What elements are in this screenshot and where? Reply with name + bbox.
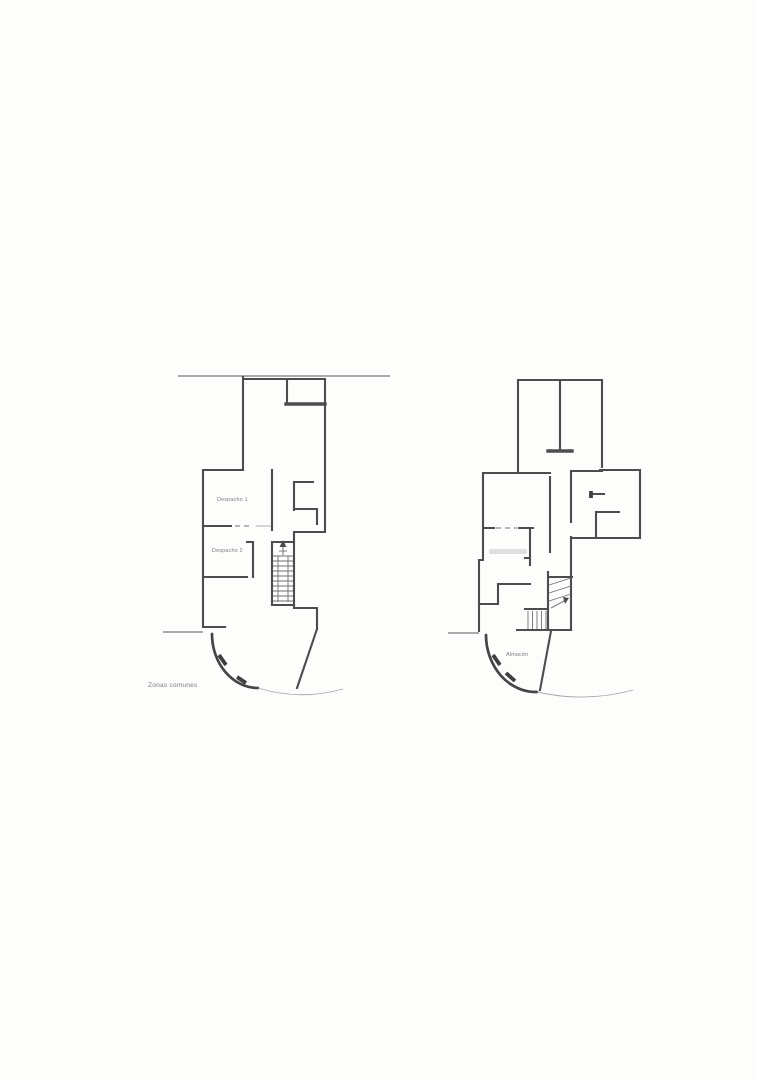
label-zonas-comunes: Zonas comunes <box>148 682 198 689</box>
floor-plan-right: Almacén <box>448 380 640 697</box>
left-plan-partitions <box>203 470 294 605</box>
right-plan-wing-walls <box>571 470 640 538</box>
left-plan-closet-walls <box>294 482 317 524</box>
floorplans-drawing: Despacho 1 Despacho 2 Zonas comunes <box>0 0 757 1080</box>
left-plan-staircase <box>273 540 293 602</box>
right-plan-swing-arc <box>537 690 633 697</box>
scanned-floorplan-sheet: Despacho 1 Despacho 2 Zonas comunes <box>0 0 757 1080</box>
right-plan-top-block <box>518 380 602 472</box>
faint-illegible-label <box>489 549 527 554</box>
left-plan-swing-arc <box>258 688 343 695</box>
stair-direction-arrow-2 <box>551 600 566 608</box>
stair-direction-arrow <box>279 546 287 555</box>
floor-plan-left: Despacho 1 Despacho 2 Zonas comunes <box>148 376 390 695</box>
right-plan-curved-wall <box>486 635 537 692</box>
label-despacho-1: Despacho 1 <box>217 497 248 503</box>
left-plan-outer-walls <box>203 377 325 688</box>
right-plan-lower-room-walls <box>479 528 533 604</box>
left-plan-curved-wall <box>212 634 258 688</box>
right-plan-staircase <box>517 572 572 630</box>
label-almacen: Almacén <box>506 652 528 658</box>
right-plan-slanted-wall <box>540 631 551 690</box>
label-despacho-2: Despacho 2 <box>212 548 243 554</box>
